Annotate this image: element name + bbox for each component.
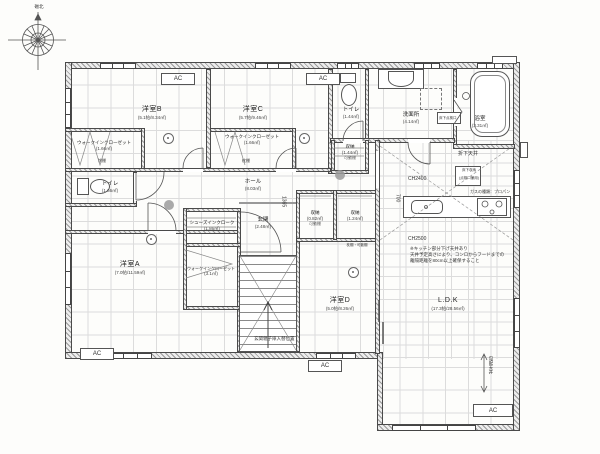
kitchen-note: ※キッチン部分下げ天井あり 天井予定高さにより、コンロからフードまでの 離隔距離… bbox=[410, 246, 530, 264]
window-roomD-bottom bbox=[316, 353, 356, 359]
room-label-yoshitsuA: 洋室A(7.0帖/11.59㎡) bbox=[86, 261, 174, 275]
entry-step-line bbox=[239, 202, 296, 204]
compass-label: 磁北 bbox=[28, 4, 50, 10]
ac-label: AC bbox=[489, 408, 497, 414]
ac-label: AC bbox=[319, 76, 327, 82]
sloped-ceiling-label: 勾配天井 bbox=[488, 356, 494, 374]
underfloor-storage-sublabel: (点検口兼用) bbox=[456, 176, 482, 181]
bath-vent-box bbox=[492, 56, 517, 64]
ac-unit-ldk: AC bbox=[473, 404, 513, 417]
dim-700-label: 700 bbox=[394, 194, 401, 202]
window-toiletTR-top bbox=[337, 63, 359, 69]
column-marker bbox=[335, 170, 345, 180]
compass-icon bbox=[8, 12, 66, 70]
opening-ldk bbox=[376, 151, 379, 188]
underfloor-storage-box: 床下収納 (点検口兼用) bbox=[455, 166, 481, 186]
window-roomB-top bbox=[100, 63, 136, 69]
detector-icon bbox=[348, 267, 359, 278]
room-label-wicB: ウォークインクローゼット(1.66㎡) bbox=[64, 140, 144, 151]
wall-toiletL-south bbox=[65, 203, 137, 207]
floor-inspection-label: 床下点検口 bbox=[439, 116, 457, 121]
ac-label: AC bbox=[174, 76, 182, 82]
column-marker bbox=[164, 200, 174, 210]
gas-type-label: ガスの種類：プロパン bbox=[470, 189, 510, 194]
wall-wicC-north bbox=[210, 128, 296, 132]
room-label-storageTR: 収納(1.44㎡)可動棚 bbox=[332, 144, 368, 160]
room-label-yoshitsuD: 洋室D(5.0帖/8.26㎡) bbox=[296, 297, 384, 311]
wall-toilet-washroom bbox=[365, 69, 369, 140]
room-label-washroom: 洗面所(4.14㎡) bbox=[386, 112, 436, 125]
ac-unit-roomA: AC bbox=[80, 348, 114, 360]
kitchen-sink bbox=[411, 200, 443, 214]
room-label-yoshitsuC: 洋室C(5.7帖/9.46㎡) bbox=[209, 106, 297, 120]
plan-grid-ldk-wing bbox=[377, 140, 520, 431]
window-ldk-sliding bbox=[392, 425, 476, 431]
window-kitchen-right bbox=[514, 170, 520, 208]
dim-1365-label: 1365 bbox=[280, 196, 287, 207]
room-label-bath: 浴室(3.31㎡) bbox=[458, 116, 502, 129]
floor-plan-sheet: 床下点検口 床下収納 (点検口兼用) AC AC AC AC AC 洋室B(5.… bbox=[0, 0, 600, 454]
room-label-sic: シューズインクローク(1.86㎡) bbox=[184, 220, 240, 231]
wall-storage-north bbox=[296, 190, 379, 194]
window-roomC-top bbox=[255, 63, 291, 69]
wall-wicB-north bbox=[65, 128, 145, 132]
ac-label: AC bbox=[93, 351, 101, 357]
ac-label: AC bbox=[321, 363, 329, 369]
window-roomA-left bbox=[65, 253, 71, 305]
wicC-shelf-note: 枕棚 bbox=[228, 158, 264, 163]
opening-washroom bbox=[408, 139, 430, 143]
room-label-yoshitsuB: 洋室B(5.1帖/8.34㎡) bbox=[108, 106, 196, 120]
wall-sic-north bbox=[183, 208, 241, 212]
ac-unit-roomC: AC bbox=[306, 73, 340, 85]
ch2400-label: CH2400 bbox=[408, 176, 426, 183]
opening-toiletTR bbox=[343, 139, 363, 143]
wall-bath-south bbox=[453, 144, 515, 149]
room-label-toiletL: トイレ(1.66㎡) bbox=[88, 181, 132, 194]
underfloor-storage-label: 床下収納 bbox=[457, 168, 481, 173]
opening-toiletL bbox=[134, 173, 137, 201]
detector-icon bbox=[163, 133, 174, 144]
opening-roomC bbox=[276, 169, 296, 172]
room-label-wicC: ウォークインクローゼット(1.66㎡) bbox=[210, 134, 294, 145]
room-label-storage2: 収納(1.24㎡) bbox=[337, 210, 373, 221]
room-label-wicA: ウォークインクローゼット(3.1㎡) bbox=[184, 266, 238, 277]
window-roomB-left bbox=[65, 88, 71, 128]
porch-note: 玄関親子扉入替位置 bbox=[254, 336, 330, 342]
storage2-shelf-note: 枕棚・可動棚 bbox=[337, 243, 377, 248]
ac-unit-roomD: AC bbox=[308, 360, 342, 372]
wall-wicA-south bbox=[183, 306, 241, 310]
room-label-storage1: 収納(0.82㎡)可動棚 bbox=[297, 210, 333, 226]
room-label-ldk: L.D.K(17.3帖/28.56㎡) bbox=[404, 297, 492, 311]
wicB-shelf-note: 枕棚 bbox=[84, 158, 120, 163]
room-label-toiletTR: トイレ(1.44㎡) bbox=[329, 107, 373, 120]
wall-storage-south bbox=[296, 238, 379, 242]
wall-sic-south bbox=[183, 243, 241, 247]
wall-ldk-west-lower bbox=[377, 352, 383, 431]
window-roomA-bottom bbox=[108, 353, 152, 359]
toiletTR-bowl bbox=[341, 84, 357, 106]
gas-stove bbox=[477, 198, 507, 216]
dropped-ceiling-label: 折下天井 bbox=[446, 151, 490, 158]
water-heater-unit bbox=[520, 142, 528, 158]
room-label-hall: ホール(8.03㎡) bbox=[230, 179, 276, 192]
room-label-genkan: 玄関(2.48㎡) bbox=[240, 217, 286, 230]
ac-unit-roomB: AC bbox=[161, 73, 195, 85]
opening-roomB bbox=[183, 169, 203, 172]
detector-icon bbox=[299, 133, 310, 144]
detector-icon bbox=[146, 234, 157, 245]
window-ldk-right bbox=[514, 298, 520, 348]
washer-space bbox=[420, 88, 442, 110]
toiletTR-tank bbox=[340, 73, 356, 83]
wash-basin bbox=[388, 71, 414, 87]
ch2500-label: CH2500 bbox=[408, 236, 426, 243]
